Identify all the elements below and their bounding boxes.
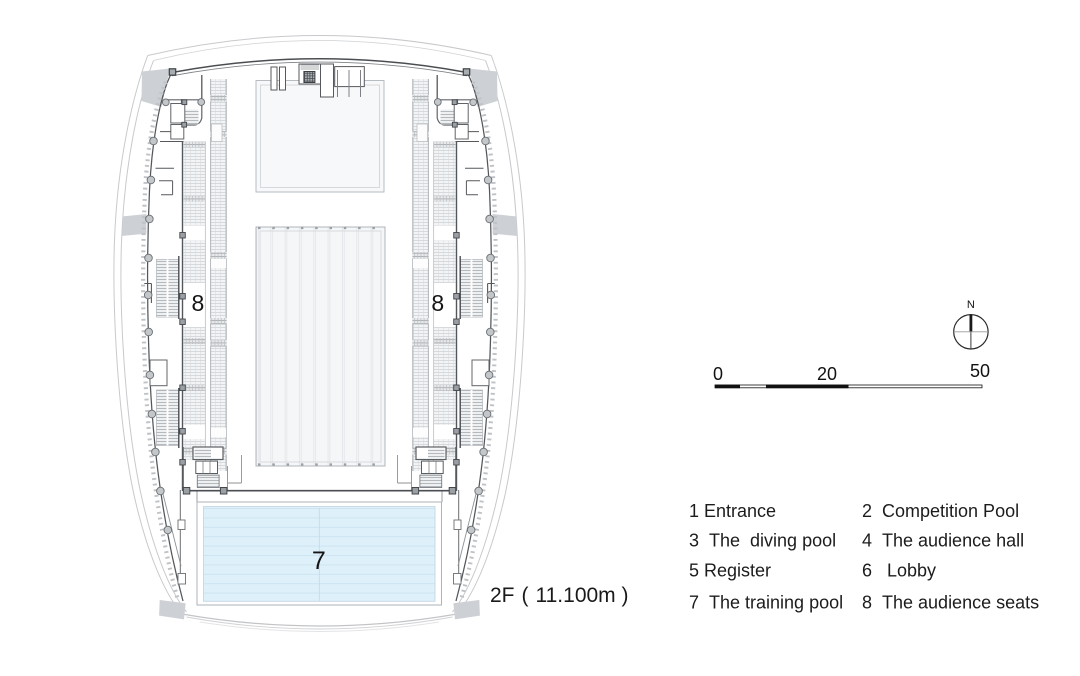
svg-text:5 Register: 5 Register [689,561,771,581]
svg-text:20: 20 [817,364,837,384]
svg-text:1 Entrance: 1 Entrance [689,501,776,521]
svg-text:0: 0 [713,364,723,384]
svg-text:4 The audience hall: 4 The audience hall [862,531,1024,551]
svg-text:50: 50 [970,361,990,381]
svg-text:2 Competition Pool: 2 Competition Pool [862,501,1019,521]
svg-text:6 Lobby: 6 Lobby [862,561,936,581]
svg-text:2F(11.100m): 2F(11.100m) [490,584,629,607]
svg-text:7 The training pool: 7 The training pool [689,593,843,613]
svg-text:N: N [967,299,975,311]
svg-text:8: 8 [431,290,444,316]
svg-text:8 The audience seats: 8 The audience seats [862,593,1039,613]
svg-text:3 The diving pool: 3 The diving pool [689,531,836,551]
svg-text:8: 8 [192,290,205,316]
svg-text:7: 7 [312,547,326,575]
